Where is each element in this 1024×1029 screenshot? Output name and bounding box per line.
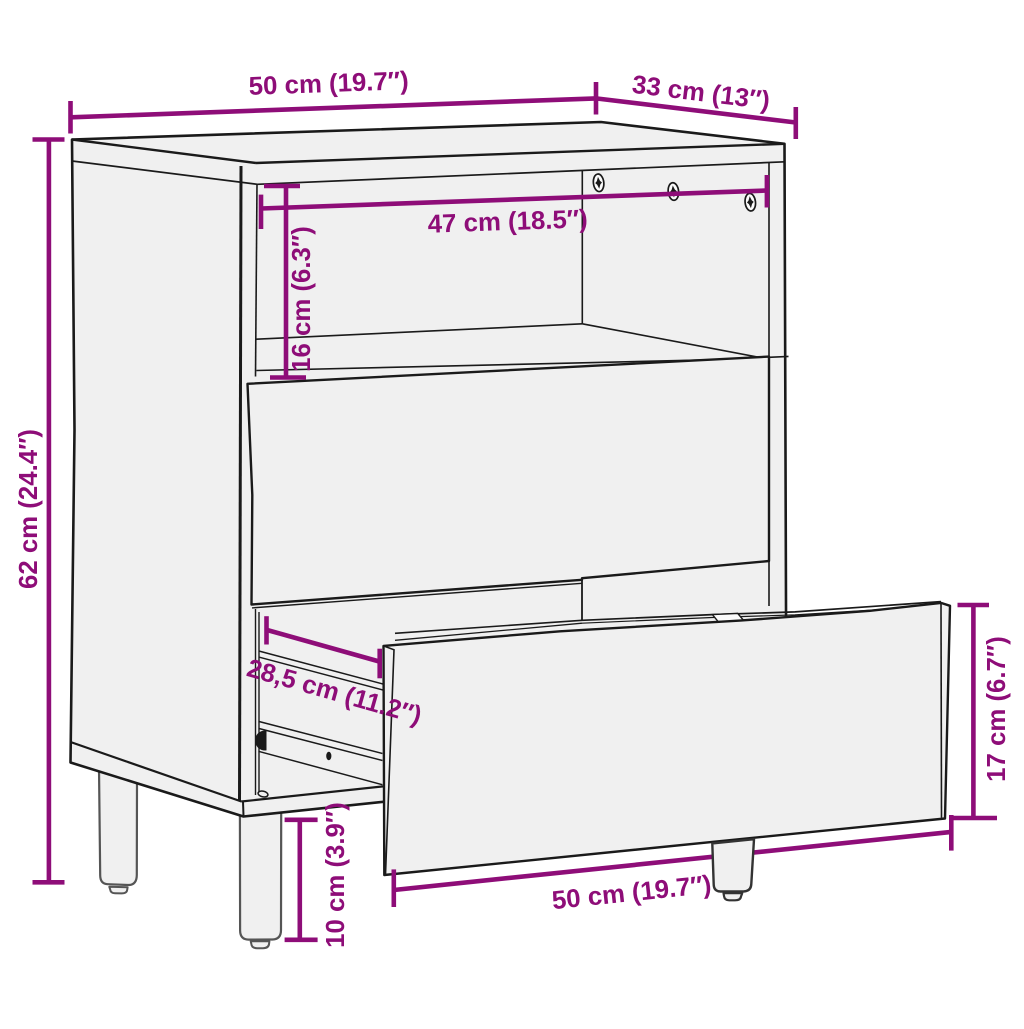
svg-text:16 cm (6.3″): 16 cm (6.3″) xyxy=(288,226,316,372)
svg-text:10 cm (3.9″): 10 cm (3.9″) xyxy=(322,802,350,948)
svg-text:50 cm (19.7″): 50 cm (19.7″) xyxy=(248,67,409,101)
svg-text:17 cm (6.7″): 17 cm (6.7″) xyxy=(983,636,1011,782)
svg-text:62 cm (24.4″): 62 cm (24.4″) xyxy=(15,429,43,589)
svg-text:47 cm (18.5″): 47 cm (18.5″) xyxy=(427,205,588,239)
